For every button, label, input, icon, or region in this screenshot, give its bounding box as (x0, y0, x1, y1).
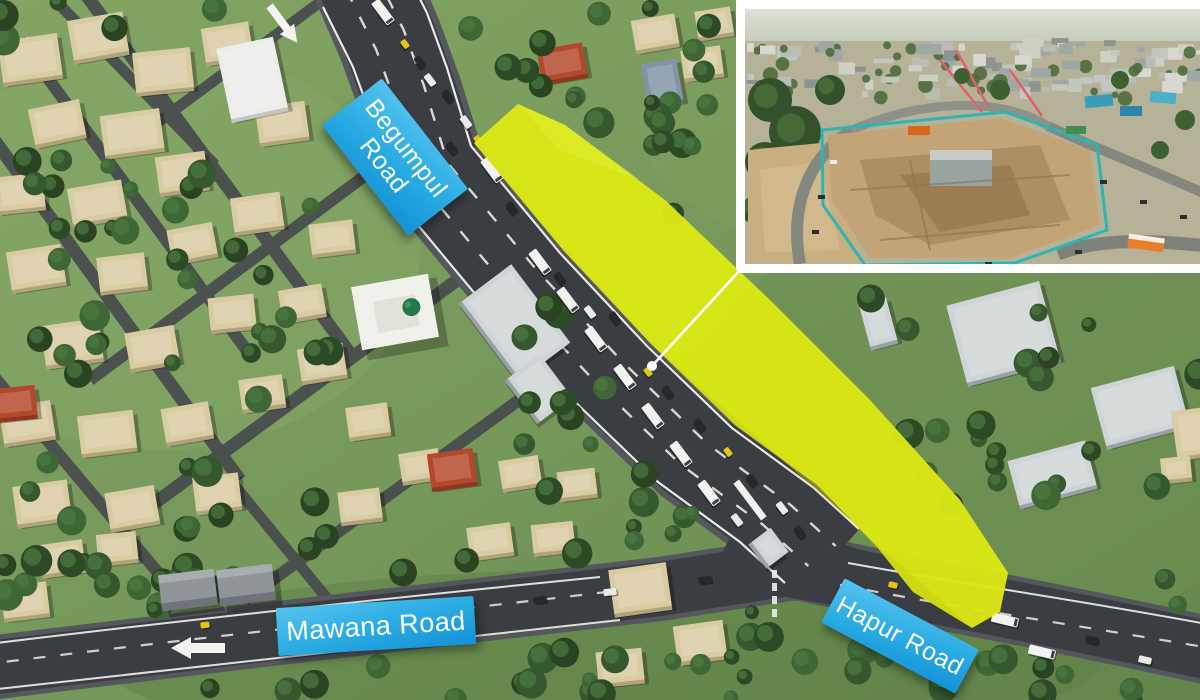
inset-photo-frame (736, 0, 1200, 273)
aerial-map-scene: Begumpul Road Mawana Road Hapur Road (0, 0, 1200, 700)
inset-photo (741, 9, 1200, 266)
map-render (0, 0, 1200, 700)
leader-dot (647, 361, 657, 371)
